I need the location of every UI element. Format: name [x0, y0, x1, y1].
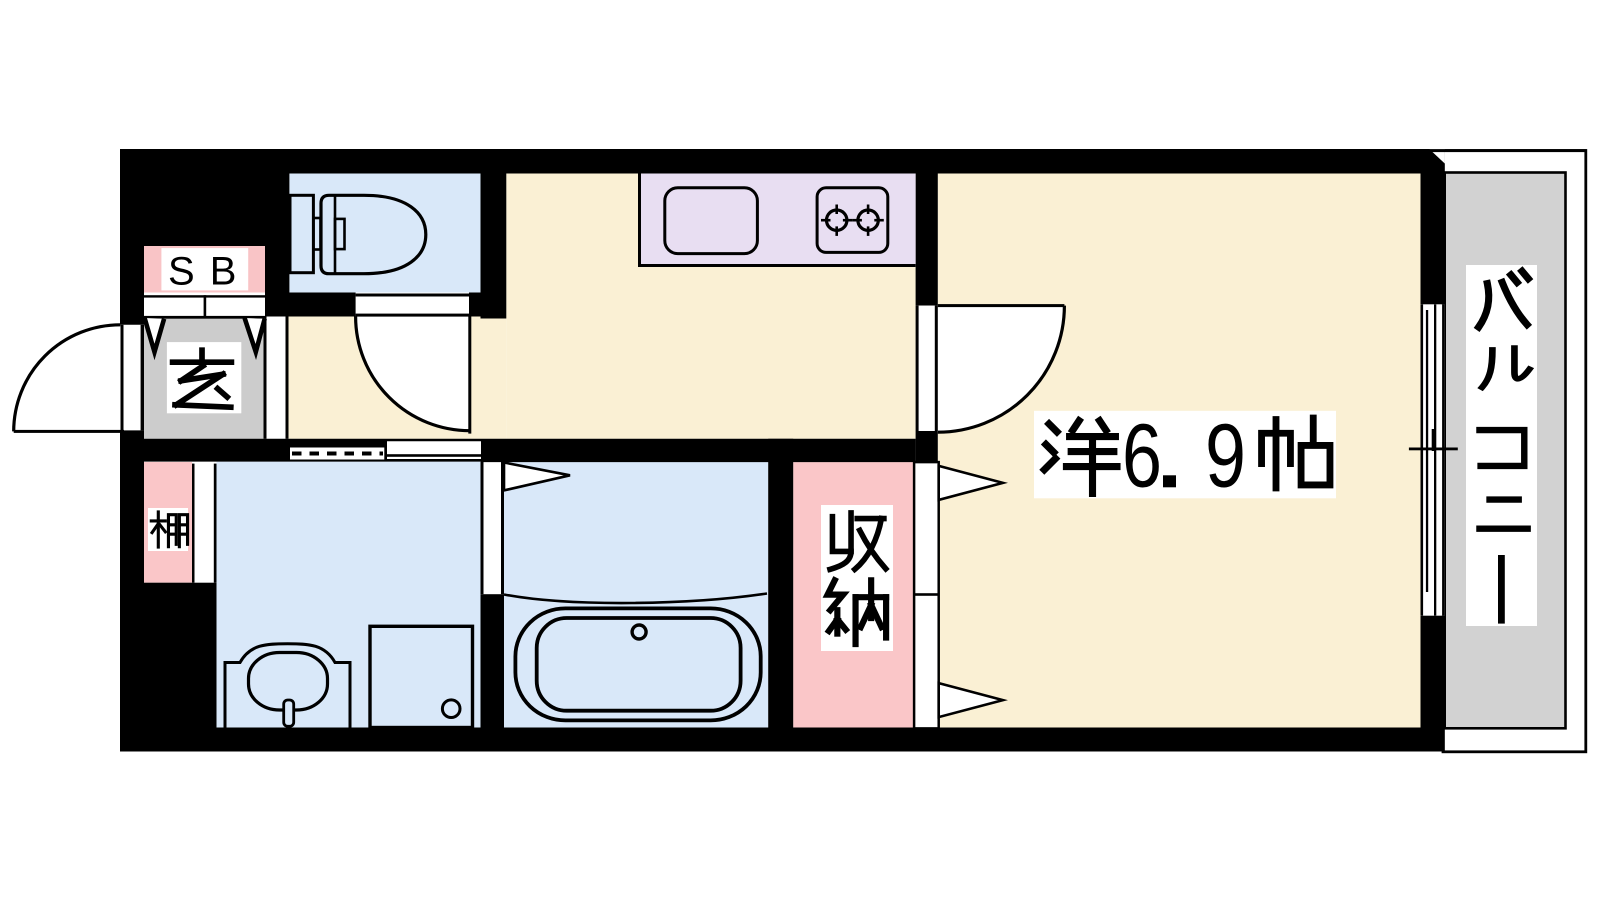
svg-text:S B: S B	[168, 250, 238, 294]
svg-text:6: 6	[1122, 407, 1162, 507]
svg-text:9: 9	[1205, 407, 1246, 507]
